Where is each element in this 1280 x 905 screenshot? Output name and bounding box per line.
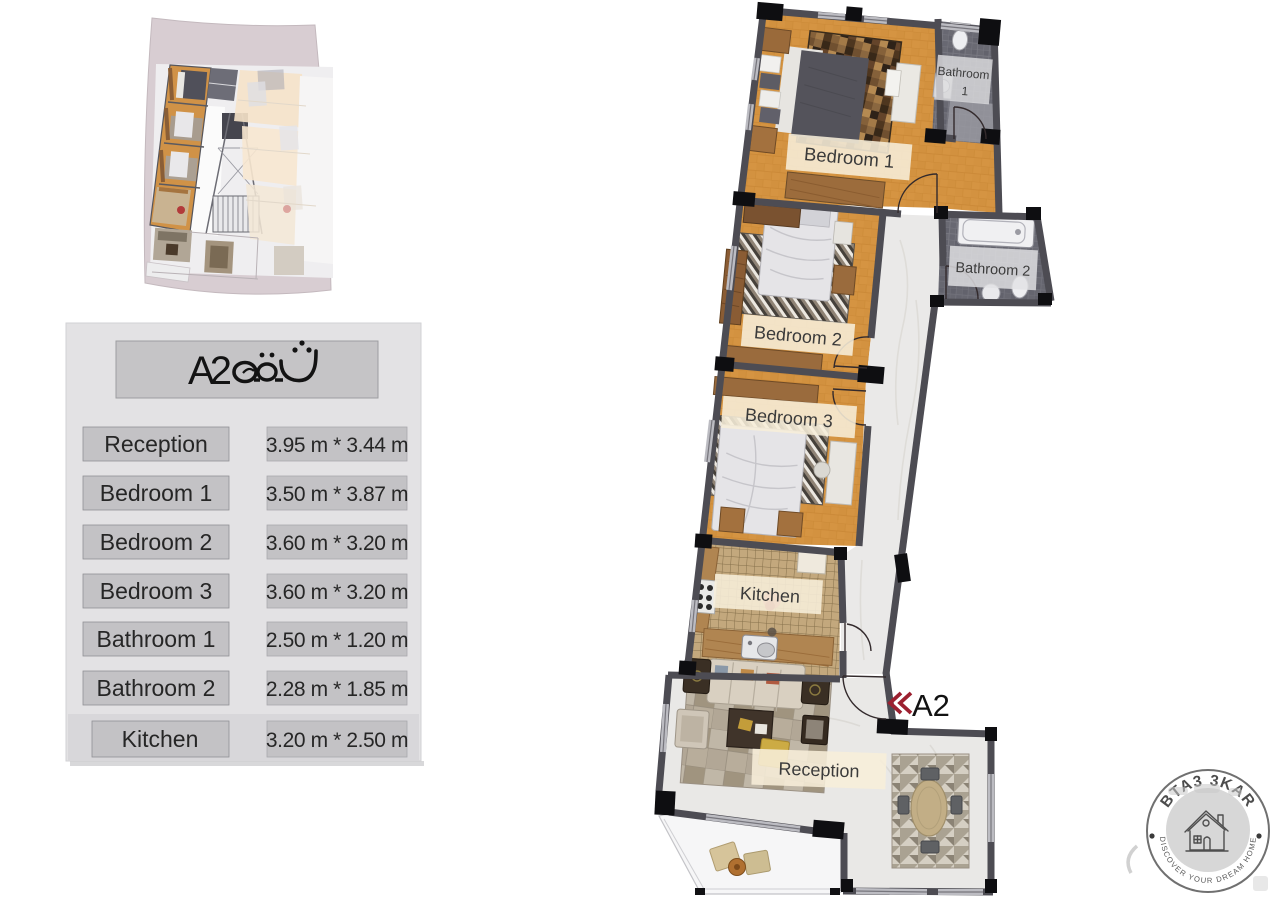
svg-text:Bathroom 1: Bathroom 1 bbox=[97, 626, 216, 652]
svg-text:Bedroom 2: Bedroom 2 bbox=[100, 529, 213, 555]
svg-text:3.60 m * 3.20 m: 3.60 m * 3.20 m bbox=[266, 581, 408, 604]
svg-text:3.60 m * 3.20 m: 3.60 m * 3.20 m bbox=[266, 532, 408, 555]
svg-text:Kitchen: Kitchen bbox=[122, 726, 199, 752]
svg-text:2.50 m * 1.20 m: 2.50 m * 1.20 m bbox=[266, 629, 408, 652]
svg-text:3.50 m * 3.87 m: 3.50 m * 3.87 m bbox=[266, 483, 408, 506]
svg-text:2.28 m * 1.85 m: 2.28 m * 1.85 m bbox=[266, 678, 408, 701]
svg-text:3.20 m * 2.50 m: 3.20 m * 2.50 m bbox=[266, 729, 408, 752]
svg-text:Reception: Reception bbox=[104, 431, 208, 457]
svg-text:Bedroom 3: Bedroom 3 bbox=[100, 578, 213, 604]
svg-text:Reception: Reception bbox=[778, 759, 860, 782]
svg-text:Bedroom 1: Bedroom 1 bbox=[100, 480, 213, 506]
svg-text:Kitchen: Kitchen bbox=[739, 583, 800, 607]
svg-text:A2: A2 bbox=[912, 688, 950, 723]
svg-text:3.95 m * 3.44 m: 3.95 m * 3.44 m bbox=[266, 434, 408, 457]
svg-text:Bathroom 2: Bathroom 2 bbox=[97, 675, 216, 701]
svg-text:A2: A2 bbox=[188, 349, 232, 393]
